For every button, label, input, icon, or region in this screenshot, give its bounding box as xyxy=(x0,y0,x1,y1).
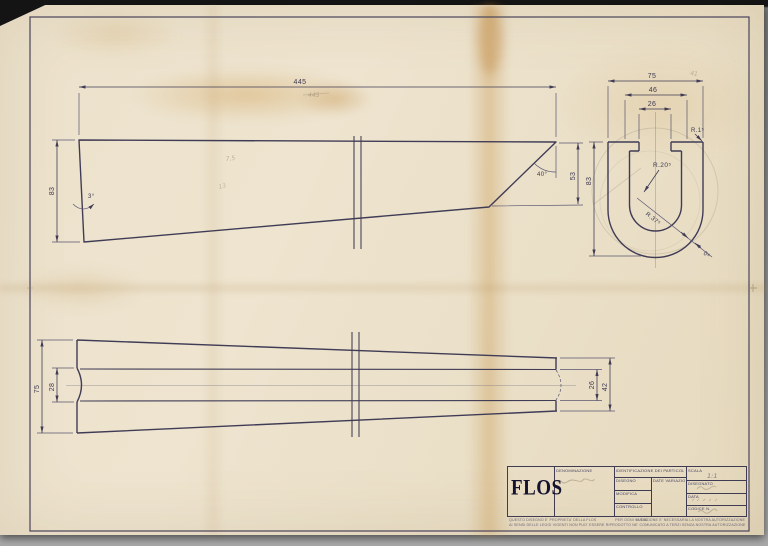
side-view: 40° 445 83 3° 53 xyxy=(49,79,583,249)
sheet-frame xyxy=(27,17,757,531)
dim-arrowhead xyxy=(681,93,688,96)
scala-label: SCALA xyxy=(688,469,702,473)
dim-arrowhead xyxy=(644,186,649,192)
plan-outline xyxy=(77,340,557,433)
footer-note-2: AI SENSI DELLE LEGGI VIGENTI NON PUO' ES… xyxy=(509,523,746,528)
profile-opening-label: 46 xyxy=(649,87,658,94)
titleblock-divider xyxy=(651,477,652,516)
plan-slot-left-end xyxy=(77,368,82,402)
row1-label: DISEGNO xyxy=(616,479,636,483)
left-height-label: 83 xyxy=(49,187,56,196)
profile-notch-label: 26 xyxy=(648,101,657,108)
drawing-linework: 40° 445 83 3° 53 75 xyxy=(0,0,768,546)
dim-arrowhead xyxy=(608,358,611,365)
taper-angle-arrowhead xyxy=(89,204,95,209)
plan-view: 75 28 26 42 xyxy=(34,332,615,437)
taper-angle-label: 3° xyxy=(88,194,95,200)
data-label: DATA xyxy=(688,495,699,499)
plan-slot-edges xyxy=(80,369,556,401)
title-block: FLOS DENOMINAZIONE IDENTIFICAZIONE DEI P… xyxy=(507,466,747,517)
plan-slot-left-label: 28 xyxy=(49,383,56,392)
pencil-construction-line xyxy=(594,168,641,204)
thickness-label: 0⁸ xyxy=(702,250,712,260)
flos-logo: FLOS xyxy=(511,476,551,501)
profile-height-extensions xyxy=(589,142,641,256)
dim-arrowhead xyxy=(40,340,43,347)
photo-background-corner xyxy=(0,0,56,26)
plan-collar xyxy=(352,332,359,437)
dim-arrowhead xyxy=(592,250,595,257)
profile-notch-extensions xyxy=(639,114,671,139)
dim-arrowhead xyxy=(697,79,704,82)
dim-arrowhead xyxy=(55,396,58,403)
variazione-label: DATE VARIAZIONE xyxy=(653,479,685,483)
dim-arrowhead xyxy=(608,405,611,412)
row3-label: CONTROLLO xyxy=(616,505,643,509)
left-height-extensions xyxy=(52,140,80,242)
plan-bend-line-hidden xyxy=(556,370,561,400)
profile-view: 75 46 26 83 R.1⁵ R.20⁵ R.37⁵ 0⁸ xyxy=(586,73,718,268)
pencil-width-note: 41 xyxy=(690,70,699,78)
dim-arrowhead xyxy=(639,107,646,110)
dim-arrowhead xyxy=(576,198,579,205)
row2-label: MODIFICA xyxy=(616,492,637,496)
overall-length-label: 445 xyxy=(294,79,307,86)
pencil-annotations: 445 7,5 13 41 1:1 xyxy=(218,70,718,513)
right-height-label: 53 xyxy=(570,172,577,181)
dim-arrowhead xyxy=(625,93,632,96)
side-view-collar xyxy=(354,136,361,249)
fold-cross-mark xyxy=(749,284,757,292)
footer-note-1: QUESTO DISEGNO E' PROPRIETA' DELLA FLOS xyxy=(509,518,596,523)
plan-width-left-label: 75 xyxy=(34,385,41,394)
plan-width-right-label: 42 xyxy=(602,383,609,392)
identificazione-label: IDENTIFICAZIONE DEI PARTICOLARI xyxy=(616,469,684,473)
dim-arrowhead xyxy=(79,85,86,88)
dim-arrowhead xyxy=(55,236,58,243)
pencil-length-note: 445 xyxy=(308,92,320,99)
titleblock-divider xyxy=(614,467,615,516)
footer-note-right: PER OGNI VARIAZIONE E' NECESSARIA LA NOS… xyxy=(615,518,745,523)
dim-arrowhead xyxy=(55,368,58,375)
profile-width-label: 75 xyxy=(648,73,657,80)
dim-arrowhead xyxy=(665,107,672,110)
cut-angle-label: 40° xyxy=(537,172,547,178)
dim-arrowhead xyxy=(595,394,598,401)
dim-arrowhead xyxy=(550,85,557,88)
dim-arrowhead xyxy=(608,79,615,82)
outer-radius-label: R.37⁵ xyxy=(644,211,662,227)
plan-slot-right-label: 26 xyxy=(589,381,596,390)
pencil-mid-note-2: 13 xyxy=(218,182,227,191)
angle-arc xyxy=(534,163,556,172)
side-view-outline xyxy=(79,140,556,242)
denominazione-label: DENOMINAZIONE xyxy=(556,469,592,473)
length-extension-lines xyxy=(79,93,556,137)
corner-radius-label: R.1⁵ xyxy=(691,127,705,134)
profile-height-label: 83 xyxy=(586,177,593,186)
codice-label: CODICE N. xyxy=(688,507,710,511)
titleblock-divider xyxy=(686,467,687,516)
dim-arrowhead xyxy=(55,140,58,147)
disegnato-label: DISEGNATO xyxy=(688,482,713,486)
scanned-drawing-photo: 40° 445 83 3° 53 75 xyxy=(0,0,768,546)
dim-arrowhead xyxy=(40,427,43,434)
dim-arrowhead xyxy=(595,370,598,377)
inner-radius-label: R.20⁵ xyxy=(653,162,671,169)
pencil-mid-note-1: 7,5 xyxy=(225,155,236,163)
dim-arrowhead xyxy=(592,142,595,149)
dim-arrowhead xyxy=(576,143,579,150)
